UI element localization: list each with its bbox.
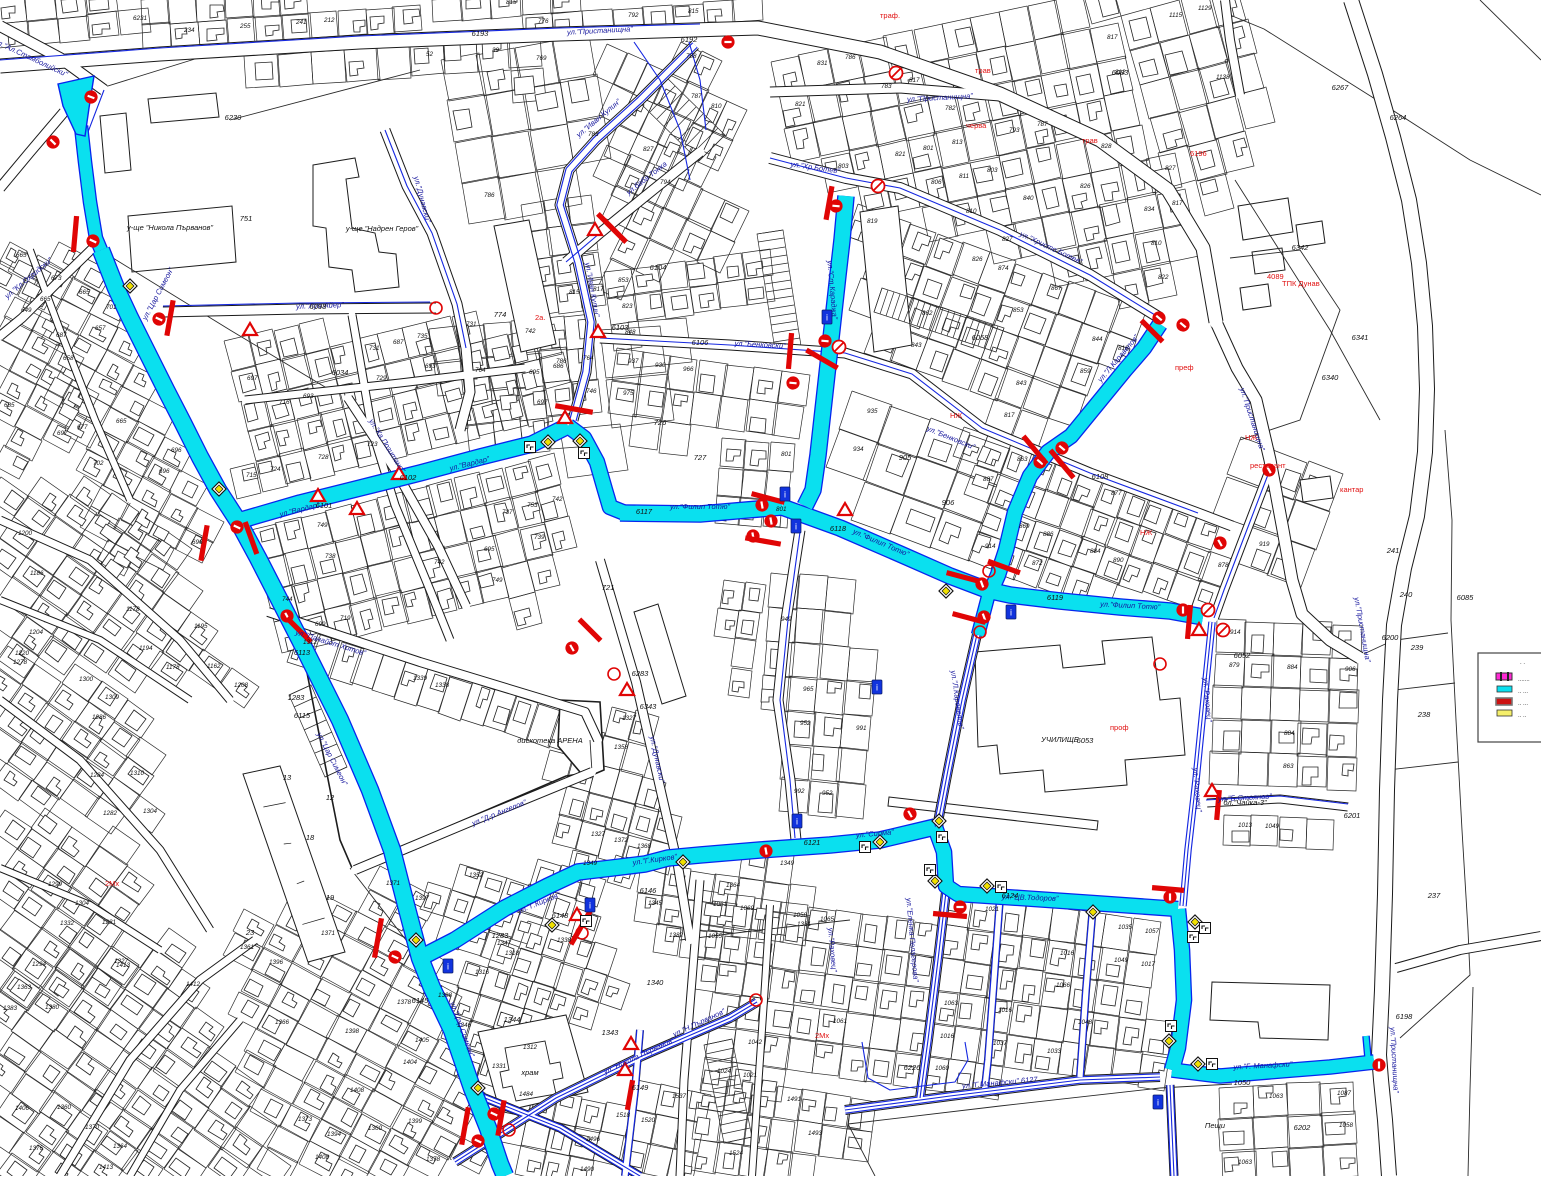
svg-text:1327: 1327 bbox=[622, 715, 637, 722]
svg-text:13: 13 bbox=[283, 773, 292, 782]
svg-text:1063: 1063 bbox=[1269, 1093, 1284, 1100]
svg-text:817: 817 bbox=[1172, 200, 1183, 207]
svg-text:813: 813 bbox=[952, 139, 963, 146]
svg-text:1524: 1524 bbox=[729, 1150, 744, 1157]
svg-text:862: 862 bbox=[922, 310, 933, 317]
svg-text:788: 788 bbox=[686, 53, 697, 60]
svg-text:792: 792 bbox=[628, 12, 639, 19]
svg-text:1283: 1283 bbox=[288, 693, 306, 702]
svg-text:6058: 6058 bbox=[972, 333, 990, 342]
svg-text:886: 886 bbox=[1043, 531, 1054, 538]
svg-text:1195: 1195 bbox=[194, 623, 208, 630]
svg-text:1278: 1278 bbox=[13, 659, 28, 666]
svg-text:6226: 6226 bbox=[904, 1063, 922, 1072]
svg-text:6118: 6118 bbox=[830, 524, 847, 533]
svg-text:6098: 6098 bbox=[310, 302, 328, 311]
svg-text:1413: 1413 bbox=[116, 962, 131, 969]
svg-text:Пещи: Пещи bbox=[1205, 1121, 1226, 1130]
svg-text:1490: 1490 bbox=[580, 1166, 595, 1173]
svg-text:801: 801 bbox=[776, 506, 787, 513]
svg-text:1493: 1493 bbox=[808, 1130, 823, 1137]
svg-text:699: 699 bbox=[315, 621, 326, 628]
svg-text:6267: 6267 bbox=[1332, 83, 1350, 92]
svg-text:906: 906 bbox=[942, 498, 955, 507]
svg-text:1061: 1061 bbox=[713, 901, 727, 908]
svg-text:786: 786 bbox=[845, 54, 856, 61]
svg-text:6341: 6341 bbox=[1352, 333, 1369, 342]
svg-text:721: 721 bbox=[602, 583, 615, 592]
svg-text:787: 787 bbox=[1037, 121, 1048, 128]
svg-text:1033: 1033 bbox=[1047, 1048, 1062, 1055]
svg-text:853: 853 bbox=[1013, 307, 1024, 314]
svg-text:трав: трав bbox=[975, 66, 991, 75]
svg-text:1048: 1048 bbox=[1078, 1019, 1093, 1026]
svg-text:6340: 6340 bbox=[1322, 373, 1340, 382]
svg-text:1338: 1338 bbox=[435, 682, 450, 689]
svg-text:ул.”Филип Тотю”: ул.”Филип Тотю” bbox=[669, 502, 731, 511]
svg-text:697: 697 bbox=[57, 430, 68, 437]
svg-text:ресторант: ресторант bbox=[1250, 461, 1286, 470]
svg-text:23: 23 bbox=[245, 928, 255, 937]
svg-text:1204: 1204 bbox=[29, 629, 44, 636]
svg-text:18: 18 bbox=[306, 833, 315, 842]
svg-text:786: 786 bbox=[484, 192, 495, 199]
svg-text:i: i bbox=[784, 490, 786, 500]
svg-text:991: 991 bbox=[856, 725, 867, 732]
svg-text:697: 697 bbox=[247, 375, 258, 382]
svg-text:.. ...: .. ... bbox=[1518, 701, 1528, 707]
svg-text:827: 827 bbox=[1165, 165, 1176, 172]
svg-text:52: 52 bbox=[426, 51, 434, 58]
svg-text:трав: трав bbox=[1082, 136, 1098, 145]
svg-text:1283: 1283 bbox=[492, 931, 510, 940]
svg-text:665: 665 bbox=[40, 296, 51, 303]
svg-text:6117: 6117 bbox=[636, 507, 653, 516]
svg-text:1360: 1360 bbox=[368, 1125, 383, 1132]
svg-text:6102: 6102 bbox=[400, 473, 418, 482]
svg-text:687: 687 bbox=[393, 339, 404, 346]
svg-text:1396: 1396 bbox=[269, 959, 284, 966]
svg-text:6053: 6053 bbox=[1077, 736, 1095, 745]
svg-text:210: 210 bbox=[293, 0, 305, 1]
svg-text:952: 952 bbox=[822, 790, 833, 797]
svg-text:6196: 6196 bbox=[1190, 149, 1207, 158]
svg-text:783: 783 bbox=[881, 83, 892, 90]
svg-text:821: 821 bbox=[795, 101, 806, 108]
svg-text:1376: 1376 bbox=[29, 1145, 44, 1152]
svg-text:764: 764 bbox=[475, 367, 486, 374]
svg-text:6198: 6198 bbox=[1396, 1012, 1414, 1021]
svg-text:827: 827 bbox=[643, 146, 654, 153]
svg-text:.......: ....... bbox=[1518, 677, 1530, 683]
svg-text:787: 787 bbox=[691, 93, 702, 100]
svg-text:815: 815 bbox=[569, 289, 580, 296]
svg-text:1318: 1318 bbox=[505, 950, 520, 957]
svg-text:782: 782 bbox=[945, 105, 956, 112]
svg-text:810: 810 bbox=[1151, 240, 1162, 247]
svg-text:6119: 6119 bbox=[1047, 593, 1064, 602]
svg-text:742: 742 bbox=[525, 328, 536, 335]
svg-text:1340: 1340 bbox=[647, 978, 665, 987]
svg-text:826: 826 bbox=[972, 256, 983, 263]
svg-text:6230: 6230 bbox=[225, 113, 243, 122]
svg-text:НЖ: НЖ bbox=[1245, 433, 1257, 442]
svg-text:815: 815 bbox=[688, 8, 699, 15]
svg-text:863: 863 bbox=[1283, 763, 1294, 770]
svg-text:ТПК Дунав: ТПК Дунав bbox=[1282, 279, 1320, 288]
svg-text:6103: 6103 bbox=[612, 323, 630, 332]
svg-text:1345: 1345 bbox=[648, 900, 663, 907]
svg-text:1021: 1021 bbox=[985, 906, 999, 913]
svg-text:6192: 6192 bbox=[681, 35, 699, 44]
svg-text:677: 677 bbox=[77, 424, 88, 431]
svg-text:742: 742 bbox=[552, 496, 563, 503]
svg-text:i: i bbox=[589, 901, 591, 911]
svg-text:6052: 6052 bbox=[1234, 651, 1252, 660]
svg-text:890: 890 bbox=[1113, 557, 1124, 564]
svg-text:727: 727 bbox=[694, 453, 707, 462]
svg-text:739: 739 bbox=[534, 534, 545, 541]
svg-text:815: 815 bbox=[506, 0, 517, 6]
svg-text:840: 840 bbox=[1023, 195, 1034, 202]
svg-text:801: 801 bbox=[781, 451, 792, 458]
svg-text:878: 878 bbox=[1218, 562, 1229, 569]
svg-text:822: 822 bbox=[1158, 274, 1169, 281]
svg-text:776: 776 bbox=[538, 18, 549, 25]
svg-text:1380: 1380 bbox=[45, 1004, 60, 1011]
svg-text:696: 696 bbox=[192, 539, 203, 546]
svg-text:1186: 1186 bbox=[30, 570, 44, 577]
svg-text:867: 867 bbox=[1051, 285, 1062, 292]
svg-text:729: 729 bbox=[376, 375, 387, 382]
svg-text:240: 240 bbox=[1399, 590, 1413, 599]
svg-text:2а.: 2а. bbox=[535, 313, 545, 322]
svg-text:803: 803 bbox=[987, 167, 998, 174]
svg-text:965: 965 bbox=[803, 686, 814, 693]
svg-text:6201: 6201 bbox=[1344, 811, 1361, 820]
svg-text:673: 673 bbox=[51, 275, 62, 282]
svg-text:786: 786 bbox=[556, 358, 567, 365]
svg-text:НЖ: НЖ bbox=[1140, 528, 1152, 537]
svg-text:701: 701 bbox=[106, 304, 117, 311]
svg-text:1518: 1518 bbox=[616, 1112, 631, 1119]
svg-text:1286: 1286 bbox=[92, 714, 107, 721]
svg-text:39: 39 bbox=[492, 47, 500, 54]
svg-text:6200: 6200 bbox=[1382, 633, 1400, 642]
svg-text:НЖ: НЖ bbox=[950, 411, 962, 420]
svg-text:1063: 1063 bbox=[944, 1000, 959, 1007]
svg-text:935: 935 bbox=[867, 408, 878, 415]
svg-text:934: 934 bbox=[853, 446, 864, 453]
svg-text:.. ..: .. .. bbox=[1518, 713, 1527, 719]
svg-text:1058: 1058 bbox=[793, 912, 808, 919]
svg-text:1383: 1383 bbox=[3, 1005, 18, 1012]
svg-text:1060: 1060 bbox=[935, 1065, 950, 1072]
svg-text:1035: 1035 bbox=[1118, 924, 1133, 931]
svg-text:1363: 1363 bbox=[17, 984, 32, 991]
svg-text:1058: 1058 bbox=[1339, 1122, 1354, 1129]
svg-text:1371: 1371 bbox=[321, 930, 335, 937]
svg-text:1310: 1310 bbox=[130, 770, 145, 777]
svg-text:801: 801 bbox=[923, 145, 934, 152]
svg-text:1065: 1065 bbox=[820, 916, 835, 923]
svg-text:831: 831 bbox=[817, 60, 828, 67]
svg-text:966: 966 bbox=[683, 366, 694, 373]
svg-text:6148: 6148 bbox=[552, 911, 570, 920]
svg-text:1055: 1055 bbox=[708, 933, 723, 940]
svg-text:1496: 1496 bbox=[586, 1136, 601, 1143]
svg-text:1281: 1281 bbox=[102, 919, 116, 926]
svg-text:1373: 1373 bbox=[298, 1116, 313, 1123]
svg-text:1294: 1294 bbox=[32, 961, 47, 968]
svg-text:1397: 1397 bbox=[415, 895, 430, 902]
svg-text:869: 869 bbox=[1019, 523, 1030, 530]
svg-text:1399: 1399 bbox=[408, 1118, 423, 1125]
svg-text:828: 828 bbox=[1101, 143, 1112, 150]
svg-text:1178: 1178 bbox=[126, 606, 140, 613]
svg-text:879: 879 bbox=[1229, 662, 1240, 669]
svg-text:1491: 1491 bbox=[787, 1096, 801, 1103]
svg-text:949: 949 bbox=[781, 616, 792, 623]
svg-text:764: 764 bbox=[583, 355, 594, 362]
svg-text:1312: 1312 bbox=[523, 1044, 538, 1051]
svg-text:212: 212 bbox=[323, 17, 335, 24]
svg-text:. .: . . bbox=[1520, 660, 1525, 666]
svg-text:6342: 6342 bbox=[1292, 243, 1310, 252]
svg-text:1331: 1331 bbox=[492, 1063, 506, 1070]
svg-text:1331: 1331 bbox=[797, 921, 811, 928]
svg-text:806: 806 bbox=[931, 179, 942, 186]
svg-text:834: 834 bbox=[1144, 206, 1155, 213]
svg-text:12: 12 bbox=[326, 793, 335, 802]
svg-text:кантар: кантар bbox=[1340, 485, 1363, 494]
svg-text:919: 919 bbox=[1259, 541, 1270, 548]
svg-text:716: 716 bbox=[279, 399, 290, 406]
svg-text:1037: 1037 bbox=[993, 1040, 1008, 1047]
svg-text:1412: 1412 bbox=[186, 981, 201, 988]
svg-text:749: 749 bbox=[317, 522, 328, 529]
svg-text:1021: 1021 bbox=[743, 1072, 757, 1079]
svg-text:827: 827 bbox=[1002, 236, 1013, 243]
svg-text:843: 843 bbox=[1016, 380, 1027, 387]
svg-text:1069: 1069 bbox=[740, 905, 755, 912]
svg-text:715: 715 bbox=[246, 472, 257, 479]
svg-text:1360: 1360 bbox=[57, 1104, 72, 1111]
svg-text:731: 731 bbox=[369, 345, 380, 352]
svg-text:6145: 6145 bbox=[412, 996, 430, 1005]
svg-text:1344: 1344 bbox=[504, 1015, 521, 1024]
svg-text:952: 952 bbox=[800, 720, 811, 727]
svg-text:1358: 1358 bbox=[614, 744, 629, 751]
svg-text:872: 872 bbox=[1032, 560, 1043, 567]
svg-text:821: 821 bbox=[895, 151, 906, 158]
svg-text:6085: 6085 bbox=[1457, 593, 1475, 602]
svg-text:.. ...: .. ... bbox=[1518, 689, 1528, 695]
svg-text:742: 742 bbox=[434, 559, 445, 566]
svg-text:738: 738 bbox=[325, 553, 336, 560]
svg-text:687: 687 bbox=[56, 332, 67, 339]
svg-text:1372: 1372 bbox=[614, 837, 629, 844]
svg-text:у-ще ”Никола Първанов”: у-ще ”Никола Първанов” bbox=[126, 223, 213, 232]
svg-text:697: 697 bbox=[537, 399, 548, 406]
svg-text:1304: 1304 bbox=[75, 900, 90, 907]
svg-text:746: 746 bbox=[586, 388, 597, 395]
svg-text:914: 914 bbox=[1230, 629, 1241, 636]
svg-text:649: 649 bbox=[21, 307, 32, 314]
svg-text:905: 905 bbox=[899, 453, 912, 462]
svg-text:731: 731 bbox=[466, 321, 477, 328]
svg-text:1368: 1368 bbox=[637, 843, 652, 850]
svg-text:992: 992 bbox=[794, 788, 805, 795]
svg-text:преф: преф bbox=[1175, 363, 1194, 372]
svg-text:241: 241 bbox=[295, 19, 307, 26]
svg-text:2Мх: 2Мх bbox=[105, 879, 119, 888]
svg-text:884: 884 bbox=[1090, 548, 1101, 555]
svg-text:769: 769 bbox=[536, 55, 547, 62]
svg-text:1378: 1378 bbox=[397, 999, 412, 1006]
svg-text:1398: 1398 bbox=[438, 992, 453, 999]
svg-text:1194: 1194 bbox=[139, 645, 153, 652]
svg-text:i: i bbox=[796, 817, 798, 827]
svg-text:1349: 1349 bbox=[780, 860, 795, 867]
svg-text:1406: 1406 bbox=[15, 1105, 30, 1112]
svg-text:1208: 1208 bbox=[234, 682, 249, 689]
svg-text:793: 793 bbox=[1009, 127, 1020, 134]
svg-text:6113: 6113 bbox=[294, 648, 311, 657]
svg-text:бл.”Чайка-3”: бл.”Чайка-3” bbox=[1223, 798, 1267, 807]
svg-text:975: 975 bbox=[623, 390, 634, 397]
svg-text:887: 887 bbox=[983, 476, 994, 483]
svg-text:719: 719 bbox=[340, 615, 351, 622]
svg-text:1063: 1063 bbox=[1238, 1159, 1253, 1166]
svg-text:1404: 1404 bbox=[403, 1059, 418, 1066]
svg-text:6121: 6121 bbox=[804, 838, 821, 847]
svg-text:1364: 1364 bbox=[726, 882, 741, 889]
svg-text:751: 751 bbox=[240, 214, 253, 223]
svg-text:6115: 6115 bbox=[294, 711, 311, 720]
svg-text:УЧИЛИЩЕ: УЧИЛИЩЕ bbox=[1040, 735, 1080, 744]
svg-text:6034: 6034 bbox=[332, 368, 349, 377]
svg-text:774: 774 bbox=[494, 310, 507, 319]
svg-text:1398: 1398 bbox=[345, 1028, 360, 1035]
svg-text:6101: 6101 bbox=[316, 501, 333, 510]
svg-text:1087: 1087 bbox=[1337, 1090, 1352, 1097]
svg-text:1013: 1013 bbox=[1238, 822, 1253, 829]
svg-text:817: 817 bbox=[1004, 412, 1015, 419]
svg-text:1537: 1537 bbox=[672, 1093, 687, 1100]
svg-text:749: 749 bbox=[492, 577, 503, 584]
svg-text:1049: 1049 bbox=[1114, 957, 1129, 964]
svg-text:1352: 1352 bbox=[469, 872, 484, 879]
svg-text:4089: 4089 bbox=[1267, 272, 1284, 281]
svg-text:665: 665 bbox=[79, 289, 90, 296]
svg-text:1284: 1284 bbox=[90, 772, 105, 779]
svg-text:6108: 6108 bbox=[1092, 472, 1110, 481]
svg-text:i: i bbox=[1010, 608, 1012, 618]
svg-text:693: 693 bbox=[303, 393, 314, 400]
svg-text:1017: 1017 bbox=[1141, 961, 1156, 968]
svg-text:1378: 1378 bbox=[426, 1156, 441, 1163]
svg-text:1316: 1316 bbox=[475, 969, 490, 976]
svg-text:1178: 1178 bbox=[166, 664, 180, 671]
svg-text:811: 811 bbox=[959, 173, 969, 180]
svg-text:695: 695 bbox=[529, 369, 540, 376]
svg-text:1364: 1364 bbox=[113, 1143, 128, 1150]
svg-text:1129: 1129 bbox=[1198, 5, 1212, 12]
svg-text:1408: 1408 bbox=[315, 1154, 330, 1161]
svg-text:6264: 6264 bbox=[1390, 113, 1407, 122]
svg-text:1484: 1484 bbox=[519, 1091, 534, 1098]
svg-text:1200: 1200 bbox=[18, 530, 33, 537]
svg-text:6106: 6106 bbox=[692, 338, 710, 347]
svg-text:i: i bbox=[795, 522, 797, 532]
svg-text:1332: 1332 bbox=[60, 920, 75, 927]
svg-text:i: i bbox=[826, 313, 828, 323]
svg-text:877: 877 bbox=[1111, 490, 1122, 497]
svg-text:859: 859 bbox=[1080, 368, 1091, 375]
svg-text:693: 693 bbox=[425, 363, 436, 370]
svg-text:1016: 1016 bbox=[1060, 950, 1075, 957]
svg-text:6343: 6343 bbox=[640, 702, 658, 711]
svg-text:6283: 6283 bbox=[632, 669, 650, 678]
svg-text:241: 241 bbox=[1386, 546, 1400, 555]
svg-text:239: 239 bbox=[1410, 643, 1424, 652]
svg-text:724: 724 bbox=[270, 466, 281, 473]
svg-text:1370: 1370 bbox=[85, 1124, 100, 1131]
svg-text:6149: 6149 bbox=[632, 1083, 650, 1092]
svg-text:6083: 6083 bbox=[1112, 68, 1130, 77]
svg-text:1405: 1405 bbox=[415, 1037, 430, 1044]
svg-text:6104: 6104 bbox=[650, 263, 667, 272]
svg-text:1042: 1042 bbox=[748, 1039, 763, 1046]
svg-text:1394: 1394 bbox=[327, 1131, 342, 1138]
svg-text:255: 255 bbox=[239, 23, 251, 30]
svg-text:702: 702 bbox=[93, 460, 104, 467]
svg-text:i: i bbox=[447, 962, 449, 972]
svg-text:дискотека АРЕНА: дискотека АРЕНА bbox=[517, 736, 582, 745]
svg-text:1408: 1408 bbox=[350, 1087, 365, 1094]
svg-text:238: 238 bbox=[1417, 710, 1431, 719]
svg-text:863: 863 bbox=[1017, 456, 1028, 463]
svg-text:665: 665 bbox=[116, 418, 127, 425]
svg-text:1327: 1327 bbox=[591, 831, 606, 838]
svg-text:844: 844 bbox=[1092, 336, 1103, 343]
svg-text:737: 737 bbox=[502, 509, 513, 516]
svg-text:1366: 1366 bbox=[275, 1019, 290, 1026]
svg-text:i: i bbox=[1157, 1098, 1159, 1108]
svg-text:234: 234 bbox=[183, 27, 195, 34]
svg-text:6193: 6193 bbox=[472, 29, 490, 38]
svg-text:753: 753 bbox=[527, 502, 538, 509]
svg-text:1361: 1361 bbox=[240, 944, 254, 951]
svg-text:685: 685 bbox=[4, 402, 15, 409]
svg-text:744: 744 bbox=[282, 596, 293, 603]
svg-text:1162: 1162 bbox=[207, 663, 221, 670]
svg-text:1066: 1066 bbox=[1056, 982, 1071, 989]
svg-text:884: 884 bbox=[1287, 664, 1298, 671]
svg-text:930: 930 bbox=[655, 362, 666, 369]
svg-text:1304: 1304 bbox=[143, 808, 158, 815]
svg-text:траф.: траф. bbox=[880, 11, 900, 20]
svg-text:237: 237 bbox=[1427, 891, 1441, 900]
svg-text:1349: 1349 bbox=[583, 860, 598, 867]
svg-text:i: i bbox=[876, 683, 878, 693]
svg-text:906: 906 bbox=[1345, 666, 1356, 673]
svg-text:658: 658 bbox=[63, 355, 74, 362]
svg-text:1115: 1115 bbox=[1169, 12, 1183, 19]
svg-text:735: 735 bbox=[417, 333, 428, 340]
svg-text:1016: 1016 bbox=[940, 1033, 955, 1040]
